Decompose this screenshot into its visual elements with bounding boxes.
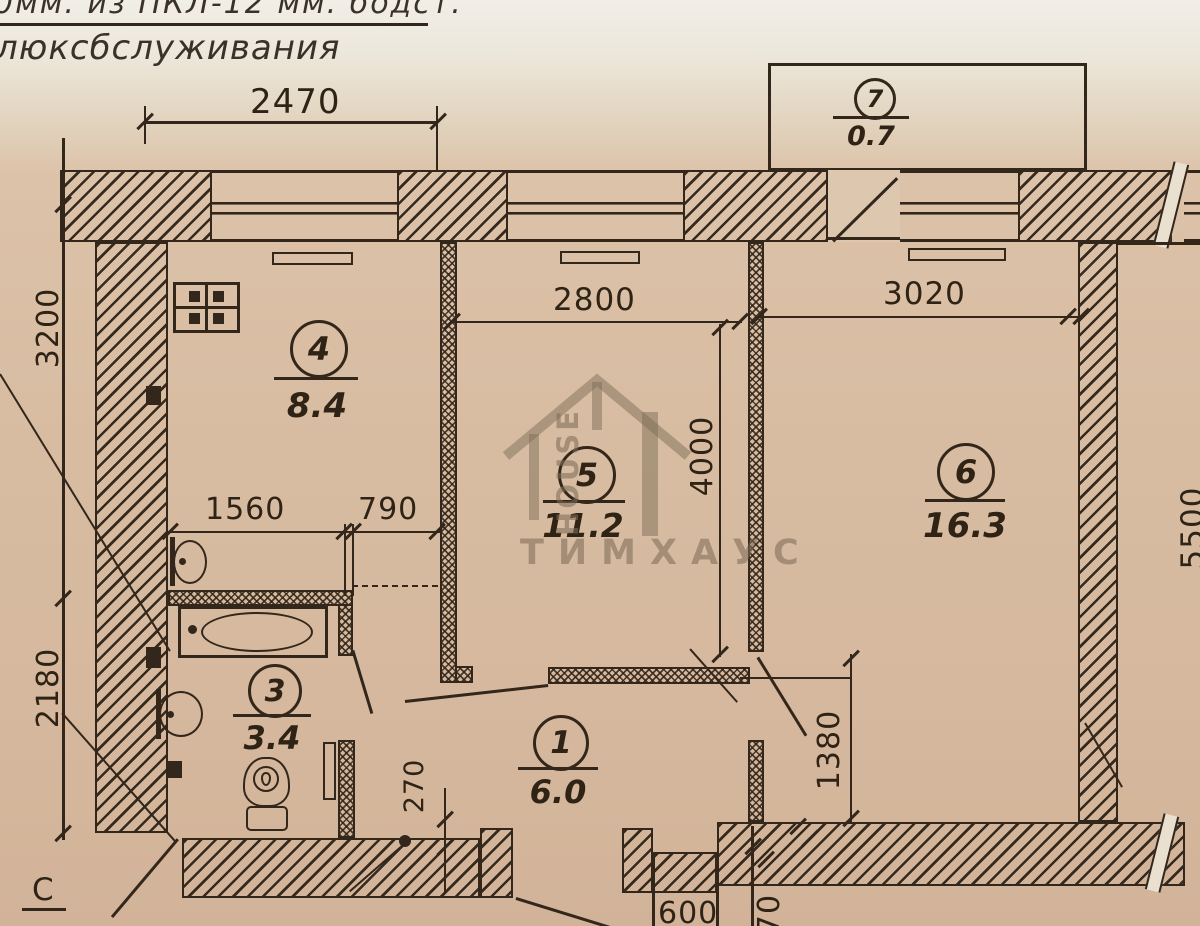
- dim2800-line: [450, 321, 742, 323]
- window-room4: [212, 170, 397, 242]
- dim1560-line: [168, 531, 440, 533]
- partition-kitchen-room5: [440, 242, 457, 683]
- room6-label-line: [925, 499, 1005, 502]
- opening-dashed-line: [352, 585, 438, 587]
- entry-door-swing: [516, 897, 610, 926]
- radiator-room6: [908, 248, 1006, 261]
- window-balcony: [900, 170, 1018, 242]
- room1-label-line: [518, 767, 598, 770]
- wall-top-pier-1: [60, 170, 212, 242]
- dim2470-guide-r: [436, 106, 438, 172]
- dim-790: 790: [358, 492, 418, 527]
- partition-room5-room6: [748, 242, 764, 652]
- dim-2470: 2470: [250, 82, 341, 122]
- bathtub-drain: [188, 625, 197, 634]
- axis-label: С: [32, 872, 55, 908]
- neighbor-top-line: [1118, 242, 1200, 245]
- sink1-drain: [179, 558, 186, 565]
- room5-door-leaf: [405, 684, 548, 703]
- room3-label-line: [233, 714, 311, 717]
- dim-270: 270: [399, 736, 429, 836]
- dim-1380: 1380: [814, 700, 844, 800]
- stove-icon: [173, 282, 240, 333]
- partition-room6-stub: [748, 740, 764, 822]
- handwritten-note-line1: 0мм. из ПКЛ-12 мм. бодст.: [0, 0, 463, 21]
- sink2-drain: [167, 711, 174, 718]
- partition-bath-right-lower: [338, 740, 355, 838]
- bath-door-leaf: [352, 650, 374, 714]
- room7-area: 0.7: [838, 121, 904, 152]
- dim-1560: 1560: [205, 492, 285, 527]
- wall-top-pier-2: [397, 170, 508, 242]
- axis-label-underline: [22, 908, 66, 911]
- dim1380-top-guide: [740, 677, 852, 679]
- dim-2180: 2180: [33, 638, 63, 738]
- room1-area: 6.0: [520, 773, 596, 811]
- riser-mark-3: [167, 761, 182, 778]
- window-room5: [508, 170, 683, 242]
- balcony-door-opening: [828, 170, 900, 242]
- dim-2800: 2800: [553, 282, 636, 318]
- room6-area: 16.3: [920, 506, 1010, 546]
- room4-number-badge: 4: [290, 320, 348, 378]
- room6-number: 6: [955, 453, 977, 491]
- room3-number-badge: 3: [248, 664, 302, 718]
- room7-number-badge: 7: [854, 78, 896, 120]
- dim3020-line: [757, 316, 1082, 318]
- wall-bottom-jamb-right: [622, 828, 653, 893]
- dim600-guide-l: [652, 886, 655, 926]
- radiator-room4: [272, 252, 353, 265]
- wall-top-pier-3: [683, 170, 828, 242]
- room7-label-line: [833, 116, 909, 119]
- dim-5500: 5500: [1178, 478, 1200, 578]
- watermark-word: HOUSE: [551, 417, 585, 527]
- jamb-line-a: [344, 524, 346, 596]
- floor-plan-sheet: 0мм. из ПКЛ-12 мм. бодст. люксбслуживани…: [0, 0, 1200, 926]
- room4-label-line: [274, 377, 358, 380]
- toilet-door-leaf: [323, 742, 336, 800]
- wall-bottom-ledge: [653, 852, 717, 893]
- window-neighbor: [1184, 170, 1200, 242]
- room1-number: 1: [550, 725, 572, 761]
- riser-mark-2: [146, 647, 161, 668]
- note-underline: [0, 23, 428, 26]
- balcony-outline: [768, 63, 1087, 171]
- bathtub-inner: [201, 612, 313, 652]
- corner-door-swing: [111, 838, 179, 918]
- partition-bath-right-upper: [338, 604, 353, 656]
- partition-bath-top: [168, 590, 353, 606]
- toilet-tank: [246, 806, 288, 831]
- wall-left: [95, 242, 168, 833]
- leader-dot: [399, 835, 411, 847]
- watermark-house-icon: [498, 370, 692, 544]
- partition-kitchen-foot: [455, 666, 473, 683]
- dim-3020: 3020: [883, 276, 966, 312]
- wall-bottom-left: [182, 838, 480, 898]
- room3-number: 3: [265, 674, 286, 709]
- radiator-room5: [560, 251, 640, 264]
- wall-top-pier-4: [1018, 170, 1172, 242]
- wall-bottom-main: [717, 822, 1185, 886]
- watermark-brand: ТИМХАУС: [520, 533, 813, 573]
- room1-number-badge: 1: [533, 715, 589, 771]
- handwritten-note-line2: люксбслуживания: [0, 28, 340, 68]
- dim2470-guide-l: [144, 106, 146, 144]
- room6-door-leaf: [757, 657, 807, 737]
- riser-mark-1: [146, 386, 161, 405]
- room4-number: 4: [308, 330, 330, 368]
- room7-number: 7: [867, 85, 884, 113]
- room3-area: 3.4: [235, 719, 309, 757]
- dim270-line: [444, 788, 446, 892]
- room4-area: 8.4: [277, 386, 357, 426]
- dim-3200: 3200: [33, 278, 63, 378]
- sink2-icon: [159, 691, 203, 737]
- wall-right: [1078, 242, 1118, 822]
- dim-70: 70: [754, 864, 784, 926]
- room6-number-badge: 6: [937, 443, 995, 501]
- dim-600: 600: [658, 896, 718, 926]
- wall-bottom-jamb-left: [480, 828, 513, 898]
